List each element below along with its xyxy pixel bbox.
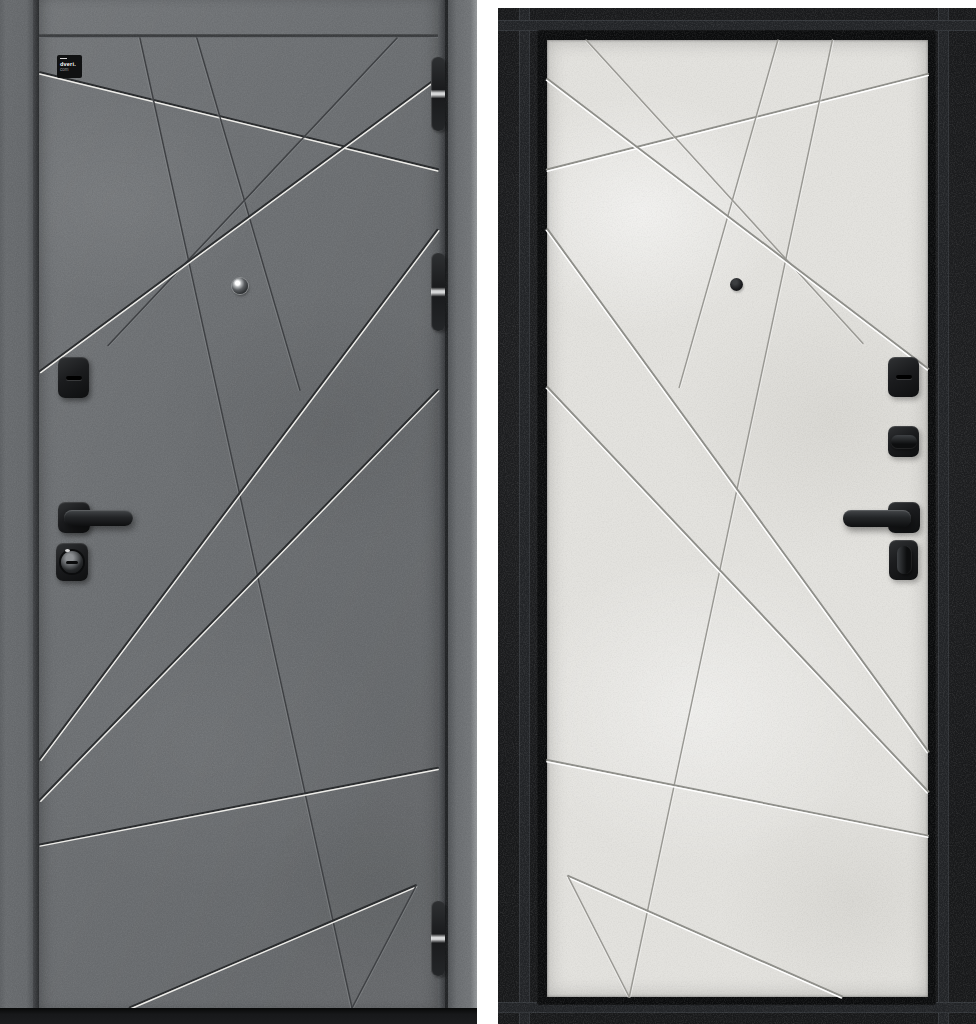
hinge-bottom — [431, 901, 445, 976]
front-cylinder-lock — [56, 543, 88, 581]
front-door-frame-left — [0, 0, 33, 1008]
thumbturn-knob — [891, 435, 917, 448]
front-door-threshold-shadow — [0, 1008, 477, 1024]
back-door-handle — [843, 510, 911, 527]
front-door-leaf-edge — [438, 0, 445, 1008]
back-night-latch — [889, 540, 918, 580]
hinge-top — [431, 57, 445, 131]
front-door-handle — [64, 510, 133, 526]
background-margin — [498, 0, 976, 8]
back-frame-ridge-right — [938, 8, 949, 1024]
front-door-frame-right — [448, 0, 477, 1008]
front-keyhole-escutcheon — [58, 357, 89, 398]
back-frame-ridge-left — [519, 8, 530, 1024]
back-keyhole-escutcheon — [888, 357, 919, 397]
logo-mark — [60, 58, 67, 59]
cylinder-keyway-icon — [66, 561, 78, 564]
background-gutter — [477, 0, 498, 1024]
night-latch-knob — [897, 546, 911, 574]
keyhole-slot-icon — [66, 376, 82, 380]
brand-logo-badge: dveri. com — [57, 55, 82, 78]
keyhole-slot-icon — [896, 375, 912, 379]
back-thumbturn-plate — [888, 426, 919, 457]
door-product-photo: { "meta": { "subject": "steel entry door… — [0, 0, 976, 1024]
front-door-leaf — [39, 0, 438, 1008]
front-peephole-icon — [232, 278, 248, 294]
front-door-top-rail-groove — [39, 34, 438, 38]
back-peephole-icon — [730, 278, 743, 291]
cylinder-glint — [65, 549, 70, 552]
hinge-middle — [431, 253, 445, 331]
logo-text-domain: com — [60, 67, 82, 72]
